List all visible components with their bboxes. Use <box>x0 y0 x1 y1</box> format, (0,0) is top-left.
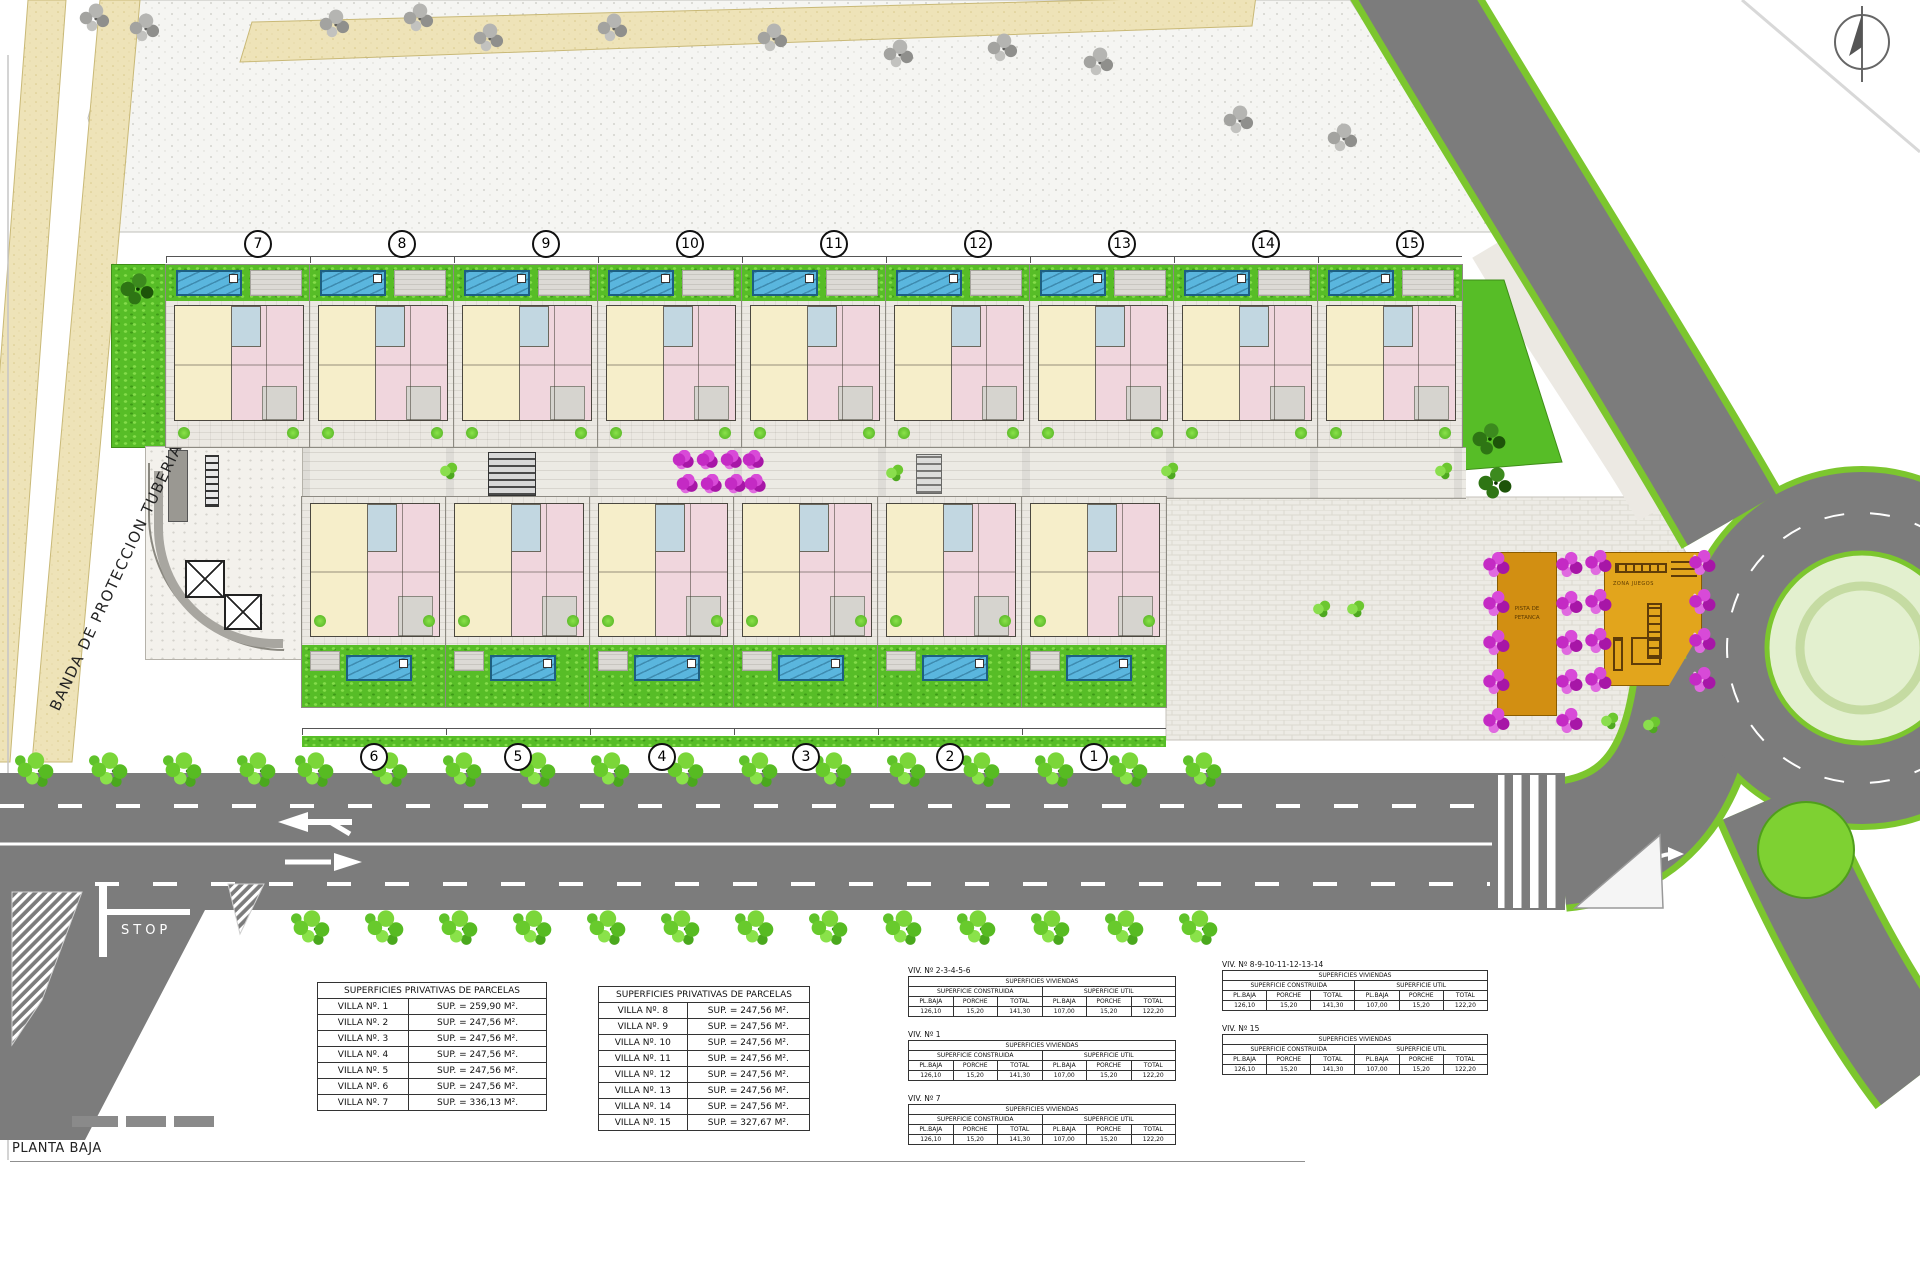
tree-icon <box>160 748 206 790</box>
dwelling-surface-table: SUPERFICIES VIVIENDASSUPERFICIE CONSTRUI… <box>1222 970 1488 1011</box>
surface-value-cell: 15,20 <box>1267 1065 1311 1075</box>
villa-name-cell: VILLA Nº. 15 <box>599 1115 688 1131</box>
villa-plot-1 <box>1022 497 1166 707</box>
villa-building <box>1030 503 1160 637</box>
villa-name-cell: VILLA Nº. 9 <box>599 1019 688 1035</box>
pool-ladder-icon <box>399 659 408 668</box>
terrace <box>1258 270 1310 296</box>
terrace <box>1402 270 1454 296</box>
column-header: PORCHE <box>1399 1055 1443 1065</box>
table-row: VILLA Nº. 11 SUP. = 247,56 M². <box>599 1051 810 1067</box>
scrub-tree-icon <box>1322 120 1362 156</box>
column-header: PL.BAJA <box>1042 1125 1087 1135</box>
bush-icon <box>466 427 478 439</box>
terrace <box>742 651 772 671</box>
surface-value-cell: 15,20 <box>953 1071 998 1081</box>
bush-icon <box>1439 427 1451 439</box>
bush-icon <box>719 427 731 439</box>
pool-ladder-icon <box>1237 274 1246 283</box>
flower-bed-icon <box>720 450 742 470</box>
flower-tree-icon <box>1580 663 1616 697</box>
villa-plot-4 <box>590 497 734 707</box>
bush-icon <box>1330 427 1342 439</box>
bush-icon <box>423 615 435 627</box>
plot-number-badge: 3 <box>792 743 820 771</box>
table-row: VILLA Nº. 14 SUP. = 247,56 M². <box>599 1099 810 1115</box>
pool-ladder-icon <box>1093 274 1102 283</box>
column-header: PORCHE <box>1267 1055 1311 1065</box>
villa-plot-13 <box>1030 265 1174 447</box>
viv-table-caption: VIV. Nº 1 <box>908 1030 941 1039</box>
villa-building <box>318 305 448 421</box>
plot-number-badge: 12 <box>964 230 992 258</box>
villa-plot-5 <box>446 497 590 707</box>
terrace <box>250 270 302 296</box>
pool <box>608 270 674 296</box>
villa-building <box>606 305 736 421</box>
column-header: PORCHE <box>1087 1125 1132 1135</box>
bush-icon <box>1344 598 1368 620</box>
interior-walls <box>463 306 591 420</box>
bush-icon <box>1151 427 1163 439</box>
scrub-tree-icon <box>124 10 164 46</box>
tree-icon <box>806 906 852 948</box>
bush-icon <box>1310 598 1334 620</box>
column-header: PORCHE <box>953 1061 998 1071</box>
plot-number-badge: 8 <box>388 230 416 258</box>
villa-name-cell: VILLA Nº. 3 <box>318 1031 409 1047</box>
built-surface-header: SUPERFICIE CONSTRUIDA <box>909 987 1043 997</box>
villa-building <box>454 503 584 637</box>
useful-surface-header: SUPERFICIE UTIL <box>1042 987 1176 997</box>
dwelling-surface-table: SUPERFICIES VIVIENDASSUPERFICIE CONSTRUI… <box>1222 1034 1488 1075</box>
villa-building <box>1182 305 1312 421</box>
viv-table-caption: VIV. Nº 15 <box>1222 1024 1259 1033</box>
flower-bed-icon <box>676 474 698 494</box>
installation-box <box>224 594 262 630</box>
surface-value-cell: 15,20 <box>953 1135 998 1145</box>
column-header: PORCHE <box>953 997 998 1007</box>
pool-ladder-icon <box>229 274 238 283</box>
pool <box>1066 655 1132 681</box>
terrace <box>1114 270 1166 296</box>
flower-bed-icon <box>672 450 694 470</box>
dark-tree-icon <box>1472 462 1518 504</box>
column-header: PL.BAJA <box>1042 1061 1087 1071</box>
villa-plot-14 <box>1174 265 1318 447</box>
scrub-tree-icon <box>468 20 508 56</box>
villa-surface-cell: SUP. = 327,67 M². <box>687 1115 809 1131</box>
bush-icon <box>1158 460 1182 482</box>
green-island-circle <box>1758 802 1854 898</box>
villa-surface-cell: SUP. = 247,56 M². <box>687 1051 809 1067</box>
surface-value-cell: 126,10 <box>909 1135 954 1145</box>
pool-ladder-icon <box>1381 274 1390 283</box>
pool-ladder-icon <box>373 274 382 283</box>
table-row: VILLA Nº. 1 SUP. = 259,90 M². <box>318 999 547 1015</box>
bush-icon <box>314 615 326 627</box>
tree-icon <box>584 906 630 948</box>
tree-icon <box>736 748 782 790</box>
villa-name-cell: VILLA Nº. 12 <box>599 1067 688 1083</box>
tree-icon <box>288 906 334 948</box>
useful-surface-header: SUPERFICIE UTIL <box>1355 1045 1488 1055</box>
interior-walls <box>1039 306 1167 420</box>
flower-bed-icon <box>696 450 718 470</box>
scrub-tree-icon <box>74 0 114 36</box>
surface-value-cell: 15,20 <box>1399 1065 1443 1075</box>
flower-tree-icon <box>1478 665 1514 699</box>
interior-walls <box>751 306 879 420</box>
pool <box>752 270 818 296</box>
plot-number-badge: 11 <box>820 230 848 258</box>
tree-icon <box>362 906 408 948</box>
street-hedge <box>302 736 1166 747</box>
pool <box>1040 270 1106 296</box>
bush-icon <box>567 615 579 627</box>
scrub-tree-icon <box>982 30 1022 66</box>
villa-surface-cell: SUP. = 247,56 M². <box>687 1083 809 1099</box>
terrace <box>538 270 590 296</box>
villa-plot-10 <box>598 265 742 447</box>
terrace <box>598 651 628 671</box>
viv-table-caption: VIV. Nº 8-9-10-11-12-13-14 <box>1222 960 1323 969</box>
crosswalk <box>1498 775 1562 908</box>
villa-surface-cell: SUP. = 247,56 M². <box>409 1031 547 1047</box>
plot-number-badge: 15 <box>1396 230 1424 258</box>
column-header: PL.BAJA <box>1223 1055 1267 1065</box>
bush-icon <box>1186 427 1198 439</box>
north-arrow-icon <box>1835 6 1889 82</box>
villa-plot-7 <box>166 265 310 447</box>
tree-icon <box>510 906 556 948</box>
bush-icon <box>437 460 461 482</box>
bush-icon <box>754 427 766 439</box>
villa-name-cell: VILLA Nº. 1 <box>318 999 409 1015</box>
table-row: VILLA Nº. 2 SUP. = 247,56 M². <box>318 1015 547 1031</box>
surface-value-cell: 122,20 <box>1131 1071 1176 1081</box>
villa-plot-8 <box>310 265 454 447</box>
interior-walls <box>175 306 303 420</box>
bush-icon <box>863 427 875 439</box>
villa-surface-cell: SUP. = 247,56 M². <box>687 1067 809 1083</box>
stop-marking: STOP <box>121 923 171 938</box>
useful-surface-header: SUPERFICIE UTIL <box>1042 1115 1176 1125</box>
tree-icon <box>1180 748 1226 790</box>
pool-ladder-icon <box>975 659 984 668</box>
scrub-tree-icon <box>1078 44 1118 80</box>
pool-ladder-icon <box>517 274 526 283</box>
stairs-icon <box>205 455 219 507</box>
built-surface-header: SUPERFICIE CONSTRUIDA <box>1223 981 1355 991</box>
table-title: SUPERFICIES PRIVATIVAS DE PARCELAS <box>599 987 810 1003</box>
plot-number-badge: 1 <box>1080 743 1108 771</box>
plot-number-badge: 5 <box>504 743 532 771</box>
pool <box>490 655 556 681</box>
pergola <box>488 452 536 496</box>
floor-label: PLANTA BAJA <box>12 1141 102 1156</box>
built-surface-header: SUPERFICIE CONSTRUIDA <box>1223 1045 1355 1055</box>
flower-tree-icon <box>1478 704 1514 738</box>
viv-table-caption: VIV. Nº 7 <box>908 1094 941 1103</box>
pool <box>346 655 412 681</box>
surface-value-cell: 122,20 <box>1131 1135 1176 1145</box>
playground-label: ZONA JUEGOS <box>1613 581 1693 587</box>
villa-building <box>742 503 872 637</box>
villa-building <box>1326 305 1456 421</box>
scrub-tree-icon <box>1218 102 1258 138</box>
villa-building <box>598 503 728 637</box>
pool-ladder-icon <box>661 274 670 283</box>
tree-icon <box>588 748 634 790</box>
parcel-surface-table: SUPERFICIES PRIVATIVAS DE PARCELAS VILLA… <box>598 986 810 1131</box>
column-header: PL.BAJA <box>1355 991 1399 1001</box>
interior-walls <box>887 504 1015 636</box>
column-header: PL.BAJA <box>909 1125 954 1135</box>
dwelling-surface-table: SUPERFICIES VIVIENDASSUPERFICIE CONSTRUI… <box>908 1104 1176 1145</box>
surface-value-cell: 141,30 <box>998 1007 1043 1017</box>
bush-icon <box>1007 427 1019 439</box>
viv-table-caption: VIV. Nº 2-3-4-5-6 <box>908 966 971 975</box>
column-header: TOTAL <box>998 1061 1043 1071</box>
scrub-tree-icon <box>592 10 632 46</box>
parcel-surface-table: SUPERFICIES PRIVATIVAS DE PARCELAS VILLA… <box>317 982 547 1111</box>
pool <box>176 270 242 296</box>
surface-value-cell: 107,00 <box>1042 1007 1087 1017</box>
dark-tree-icon <box>114 268 160 310</box>
bush-icon <box>178 427 190 439</box>
dark-tree-icon <box>1466 418 1512 460</box>
interior-walls <box>599 504 727 636</box>
bush-icon <box>898 427 910 439</box>
tree-icon <box>440 748 486 790</box>
villa-building <box>462 305 592 421</box>
table-row: VILLA Nº. 9 SUP. = 247,56 M². <box>599 1019 810 1035</box>
villa-name-cell: VILLA Nº. 5 <box>318 1063 409 1079</box>
column-header: PL.BAJA <box>909 997 954 1007</box>
table-row: VILLA Nº. 4 SUP. = 247,56 M². <box>318 1047 547 1063</box>
table-row: VILLA Nº. 6 SUP. = 247,56 M². <box>318 1079 547 1095</box>
villa-surface-cell: SUP. = 247,56 M². <box>409 1079 547 1095</box>
surface-value-cell: 141,30 <box>998 1135 1043 1145</box>
pergola-small <box>916 454 942 494</box>
bush-icon <box>1034 615 1046 627</box>
surface-value-cell: 126,10 <box>1223 1065 1267 1075</box>
surface-value-cell: 141,30 <box>998 1071 1043 1081</box>
terrace <box>1030 651 1060 671</box>
bush-icon <box>602 615 614 627</box>
bush-icon <box>890 615 902 627</box>
bush-icon <box>1143 615 1155 627</box>
flower-tree-icon <box>1580 624 1616 658</box>
bush-icon <box>883 462 907 484</box>
surface-value-cell: 107,00 <box>1355 1065 1399 1075</box>
column-header: TOTAL <box>998 1125 1043 1135</box>
flower-tree-icon <box>1551 704 1587 738</box>
flower-tree-icon <box>1684 624 1720 658</box>
pool-ladder-icon <box>543 659 552 668</box>
tree-icon <box>1102 906 1148 948</box>
terrace <box>826 270 878 296</box>
surface-value-cell: 107,00 <box>1042 1135 1087 1145</box>
terrace <box>970 270 1022 296</box>
bush-icon <box>746 615 758 627</box>
bush-icon <box>575 427 587 439</box>
villa-surface-cell: SUP. = 247,56 M². <box>409 1015 547 1031</box>
built-surface-header: SUPERFICIE CONSTRUIDA <box>909 1115 1043 1125</box>
bush-icon <box>431 427 443 439</box>
tree-icon <box>958 748 1004 790</box>
column-header: PORCHE <box>1087 1061 1132 1071</box>
column-header: TOTAL <box>1131 1125 1176 1135</box>
tree-icon <box>880 906 926 948</box>
villa-surface-cell: SUP. = 247,56 M². <box>409 1063 547 1079</box>
column-header: PL.BAJA <box>1223 991 1267 1001</box>
villa-building <box>750 305 880 421</box>
column-header: PL.BAJA <box>1042 997 1087 1007</box>
plot-number-badge: 14 <box>1252 230 1280 258</box>
interior-walls <box>1031 504 1159 636</box>
tree-icon <box>1106 748 1152 790</box>
plot-number-badge: 7 <box>244 230 272 258</box>
surface-value-cell: 15,20 <box>1087 1007 1132 1017</box>
column-header: TOTAL <box>998 997 1043 1007</box>
villa-surface-cell: SUP. = 247,56 M². <box>687 1099 809 1115</box>
terrace <box>886 651 916 671</box>
table-row: VILLA Nº. 10 SUP. = 247,56 M². <box>599 1035 810 1051</box>
villa-surface-cell: SUP. = 247,56 M². <box>687 1003 809 1019</box>
flower-tree-icon <box>1580 546 1616 580</box>
villa-surface-cell: SUP. = 247,56 M². <box>687 1035 809 1051</box>
corner-edge-line <box>1742 0 1920 152</box>
table-title: SUPERFICIES VIVIENDAS <box>909 977 1176 987</box>
bush-icon <box>1432 460 1456 482</box>
bush-icon <box>711 615 723 627</box>
plot-number-badge: 6 <box>360 743 388 771</box>
pool-ladder-icon <box>949 274 958 283</box>
villa-building <box>1038 305 1168 421</box>
plot-number-badge: 13 <box>1108 230 1136 258</box>
bush-icon <box>458 615 470 627</box>
stub-crossing-bars <box>72 1116 214 1127</box>
villa-name-cell: VILLA Nº. 13 <box>599 1083 688 1099</box>
column-header: TOTAL <box>1443 1055 1487 1065</box>
surface-value-cell: 126,10 <box>909 1071 954 1081</box>
tree-icon <box>1032 748 1078 790</box>
surface-value-cell: 15,20 <box>1087 1135 1132 1145</box>
surface-value-cell: 122,20 <box>1443 1001 1487 1011</box>
villa-name-cell: VILLA Nº. 10 <box>599 1035 688 1051</box>
villa-building <box>886 503 1016 637</box>
monkey-bars-icon <box>1615 563 1667 573</box>
table-row: VILLA Nº. 3 SUP. = 247,56 M². <box>318 1031 547 1047</box>
flower-bed-icon <box>724 474 746 494</box>
surface-value-cell: 141,30 <box>1311 1001 1355 1011</box>
column-header: PL.BAJA <box>1355 1055 1399 1065</box>
villa-name-cell: VILLA Nº. 4 <box>318 1047 409 1063</box>
villa-name-cell: VILLA Nº. 14 <box>599 1099 688 1115</box>
bush-icon <box>1640 714 1664 736</box>
column-header: PORCHE <box>953 1125 998 1135</box>
villa-plot-3 <box>734 497 878 707</box>
pool <box>320 270 386 296</box>
pool-ladder-icon <box>831 659 840 668</box>
column-header: PORCHE <box>1267 991 1311 1001</box>
villa-building <box>174 305 304 421</box>
surface-value-cell: 15,20 <box>953 1007 998 1017</box>
villa-building <box>894 305 1024 421</box>
villa-name-cell: VILLA Nº. 2 <box>318 1015 409 1031</box>
pool <box>1328 270 1394 296</box>
surface-value-cell: 107,00 <box>1042 1071 1087 1081</box>
tree-icon <box>884 748 930 790</box>
bush-icon <box>999 615 1011 627</box>
tree-icon <box>292 748 338 790</box>
title-underline <box>10 1161 1305 1162</box>
column-header: TOTAL <box>1311 1055 1355 1065</box>
tree-icon <box>436 906 482 948</box>
villa-surface-cell: SUP. = 336,13 M². <box>409 1095 547 1111</box>
flower-tree-icon <box>1478 587 1514 621</box>
villa-plot-2 <box>878 497 1022 707</box>
column-header: PORCHE <box>1087 997 1132 1007</box>
table-row: VILLA Nº. 12 SUP. = 247,56 M². <box>599 1067 810 1083</box>
useful-surface-header: SUPERFICIE UTIL <box>1355 981 1488 991</box>
table-title: SUPERFICIES VIVIENDAS <box>1223 971 1488 981</box>
table-row: VILLA Nº. 15 SUP. = 327,67 M². <box>599 1115 810 1131</box>
pool <box>922 655 988 681</box>
villa-surface-cell: SUP. = 247,56 M². <box>687 1019 809 1035</box>
pool <box>464 270 530 296</box>
interior-walls <box>607 306 735 420</box>
tree-icon <box>658 906 704 948</box>
tree-icon <box>954 906 1000 948</box>
terrace <box>394 270 446 296</box>
pool-ladder-icon <box>1119 659 1128 668</box>
terrace <box>454 651 484 671</box>
interior-walls <box>311 504 439 636</box>
bush-icon <box>1598 710 1622 732</box>
column-header: TOTAL <box>1311 991 1355 1001</box>
column-header: PL.BAJA <box>909 1061 954 1071</box>
interior-walls <box>319 306 447 420</box>
pool-ladder-icon <box>805 274 814 283</box>
flower-tree-icon <box>1684 585 1720 619</box>
tree-icon <box>86 748 132 790</box>
surface-value-cell: 122,20 <box>1131 1007 1176 1017</box>
villa-plot-15 <box>1318 265 1462 447</box>
villa-plot-6 <box>302 497 446 707</box>
pool <box>1184 270 1250 296</box>
flower-bed-icon <box>742 450 764 470</box>
surface-value-cell: 107,00 <box>1355 1001 1399 1011</box>
interior-walls <box>1183 306 1311 420</box>
tree-icon <box>1028 906 1074 948</box>
table-row: VILLA Nº. 8 SUP. = 247,56 M². <box>599 1003 810 1019</box>
built-surface-header: SUPERFICIE CONSTRUIDA <box>909 1051 1043 1061</box>
sandbox-icon <box>1631 637 1661 665</box>
villa-plot-11 <box>742 265 886 447</box>
bush-icon <box>855 615 867 627</box>
villa-surface-cell: SUP. = 247,56 M². <box>409 1047 547 1063</box>
flower-tree-icon <box>1684 663 1720 697</box>
flower-bed-icon <box>700 474 722 494</box>
scrub-tree-icon <box>398 0 438 36</box>
interior-walls <box>455 504 583 636</box>
useful-surface-header: SUPERFICIE UTIL <box>1042 1051 1176 1061</box>
surface-value-cell: 15,20 <box>1267 1001 1311 1011</box>
tree-icon <box>234 748 280 790</box>
